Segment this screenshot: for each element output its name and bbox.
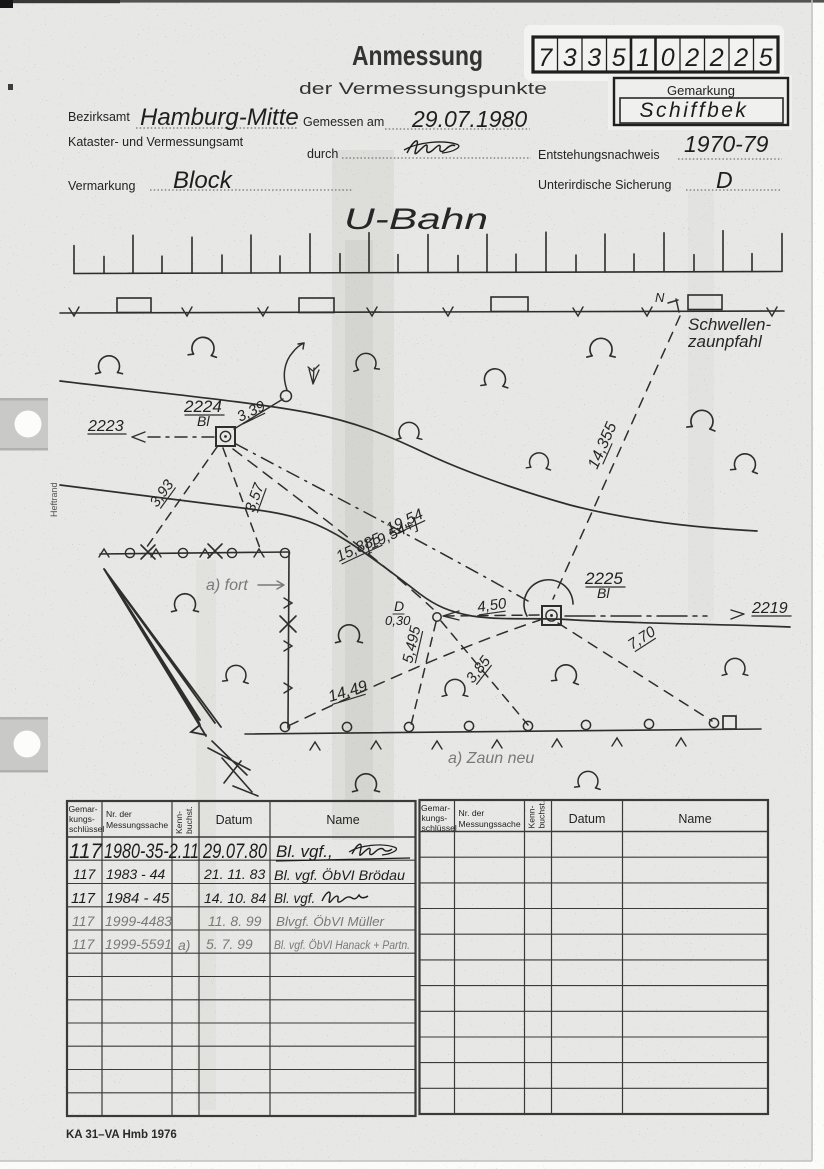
svg-text:Hamburg-Mitte: Hamburg-Mitte: [140, 104, 299, 131]
svg-text:schlüssel: schlüssel: [422, 823, 457, 833]
svg-text:Heftrand: Heftrand: [49, 482, 59, 517]
svg-text:buchst.: buchst.: [537, 801, 547, 829]
svg-text:2219: 2219: [751, 600, 788, 617]
svg-text:117: 117: [71, 890, 96, 907]
svg-text:5. 7. 99: 5. 7. 99: [206, 936, 253, 952]
svg-text:2: 2: [733, 44, 748, 72]
svg-text:Blvgf. ÖbVI Müller: Blvgf. ÖbVI Müller: [276, 914, 385, 929]
svg-text:zaunpfahl: zaunpfahl: [687, 332, 763, 351]
svg-text:1: 1: [636, 44, 650, 72]
svg-text:D: D: [716, 167, 733, 193]
svg-text:kungs-: kungs-: [69, 814, 95, 824]
svg-text:5: 5: [612, 44, 626, 72]
svg-text:2: 2: [709, 44, 724, 72]
svg-text:3: 3: [563, 44, 577, 72]
svg-text:Nr. der: Nr. der: [106, 809, 132, 819]
svg-text:Gemar-: Gemar-: [69, 804, 98, 814]
svg-text:117: 117: [73, 866, 97, 882]
svg-text:a): a): [178, 937, 190, 953]
svg-text:1999-4483: 1999-4483: [105, 913, 172, 929]
svg-text:Messungssache: Messungssache: [106, 820, 168, 830]
svg-text:7: 7: [538, 44, 553, 72]
svg-text:Datum: Datum: [216, 813, 253, 827]
svg-text:Gemessen am: Gemessen am: [303, 115, 384, 129]
svg-text:Schiffbek: Schiffbek: [640, 99, 749, 122]
svg-text:Datum: Datum: [569, 812, 606, 826]
svg-text:Bezirksamt: Bezirksamt: [68, 110, 130, 124]
svg-text:a) fort: a) fort: [206, 577, 248, 594]
svg-text:buchst.: buchst.: [184, 806, 194, 834]
svg-text:14. 10. 84: 14. 10. 84: [204, 890, 266, 906]
svg-text:Bl. vgf. ÖbVI Hanack + Partn.: Bl. vgf. ÖbVI Hanack + Partn.: [274, 940, 410, 952]
svg-text:Gemar-: Gemar-: [421, 803, 450, 813]
svg-text:N: N: [655, 290, 665, 305]
svg-text:3: 3: [587, 44, 601, 72]
svg-text:Nr. der: Nr. der: [459, 808, 485, 818]
svg-text:1983 - 44: 1983 - 44: [106, 866, 165, 882]
svg-text:U-Bahn: U-Bahn: [344, 203, 488, 236]
svg-text:Entstehungsnachweis: Entstehungsnachweis: [538, 148, 660, 162]
svg-text:29.07.80: 29.07.80: [202, 840, 267, 863]
svg-text:1970-79: 1970-79: [684, 131, 769, 157]
svg-text:5: 5: [759, 44, 773, 72]
svg-text:2: 2: [684, 44, 699, 72]
svg-text:1999-5591: 1999-5591: [105, 936, 172, 952]
svg-text:Bl. vgf.: Bl. vgf.: [274, 891, 315, 906]
svg-text:Anmessung: Anmessung: [352, 41, 483, 72]
svg-text:Kenn-: Kenn-: [174, 811, 184, 834]
svg-text:Kenn-: Kenn-: [527, 805, 537, 828]
svg-text:29.07.1980: 29.07.1980: [411, 106, 527, 132]
svg-text:Messungssache: Messungssache: [459, 819, 521, 829]
svg-text:KA 31–VA Hmb 1976: KA 31–VA Hmb 1976: [66, 1129, 177, 1141]
svg-text:schlüssel: schlüssel: [69, 824, 104, 834]
svg-text:21. 11. 83: 21. 11. 83: [203, 866, 265, 882]
svg-text:Unterirdische Sicherung: Unterirdische Sicherung: [538, 178, 671, 192]
svg-text:Block: Block: [173, 167, 234, 194]
svg-text:117: 117: [69, 840, 103, 863]
svg-text:der Vermessungspunkte: der Vermessungspunkte: [299, 79, 547, 98]
svg-text:Gemarkung: Gemarkung: [667, 83, 735, 98]
svg-text:0: 0: [661, 44, 675, 72]
svg-text:Kataster- und Vermessungsamt: Kataster- und Vermessungsamt: [68, 135, 244, 149]
svg-text:D: D: [394, 598, 404, 614]
svg-text:Bl. vgf.,: Bl. vgf.,: [276, 842, 333, 861]
svg-text:Name: Name: [678, 812, 711, 826]
svg-text:kungs-: kungs-: [422, 813, 448, 823]
svg-text:2223: 2223: [87, 418, 124, 435]
svg-text:11. 8. 99: 11. 8. 99: [208, 913, 262, 929]
svg-text:Name: Name: [326, 813, 359, 827]
svg-text:a) Zaun neu: a) Zaun neu: [448, 750, 534, 767]
svg-text:Bl. vgf. ÖbVI Brödau: Bl. vgf. ÖbVI Brödau: [274, 868, 406, 883]
svg-text:Vermarkung: Vermarkung: [68, 179, 135, 193]
svg-text:1980-35-2.11: 1980-35-2.11: [104, 840, 199, 863]
svg-text:117: 117: [72, 913, 96, 929]
svg-text:1984 - 45: 1984 - 45: [106, 890, 170, 907]
svg-text:durch: durch: [307, 147, 338, 161]
svg-text:117: 117: [72, 936, 96, 952]
